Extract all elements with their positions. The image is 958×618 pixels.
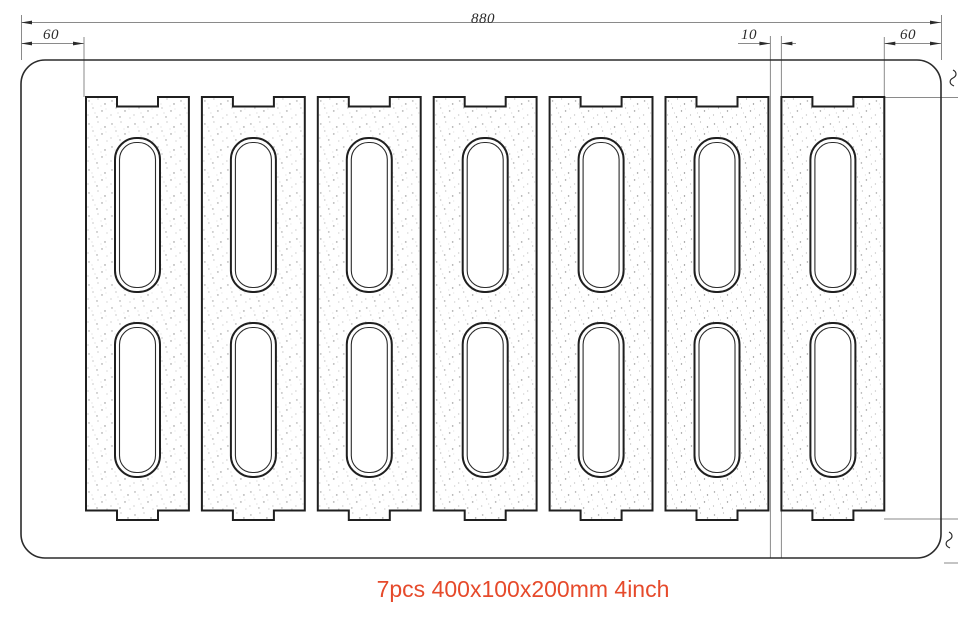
- truncated-dimension-label-fragments: [946, 70, 956, 548]
- concrete-block: [202, 97, 305, 520]
- dimension-left-margin: 60: [43, 28, 59, 43]
- blocks-layer: [86, 97, 884, 520]
- concrete-block: [318, 97, 421, 520]
- technical-drawing-page: 880 60 10 60 7pcs 400x100x200mm 4inch: [0, 0, 958, 618]
- dimension-total-width: 880: [471, 12, 495, 27]
- concrete-block: [434, 97, 537, 520]
- concrete-block: [666, 97, 769, 520]
- concrete-block: [781, 97, 884, 520]
- caption-block-spec: 7pcs 400x100x200mm 4inch: [377, 576, 670, 604]
- mold-layout-drawing: [0, 0, 958, 618]
- concrete-block: [86, 97, 189, 520]
- dimension-right-margin: 60: [900, 28, 916, 43]
- concrete-block: [550, 97, 653, 520]
- dimension-block-gap: 10: [741, 28, 757, 43]
